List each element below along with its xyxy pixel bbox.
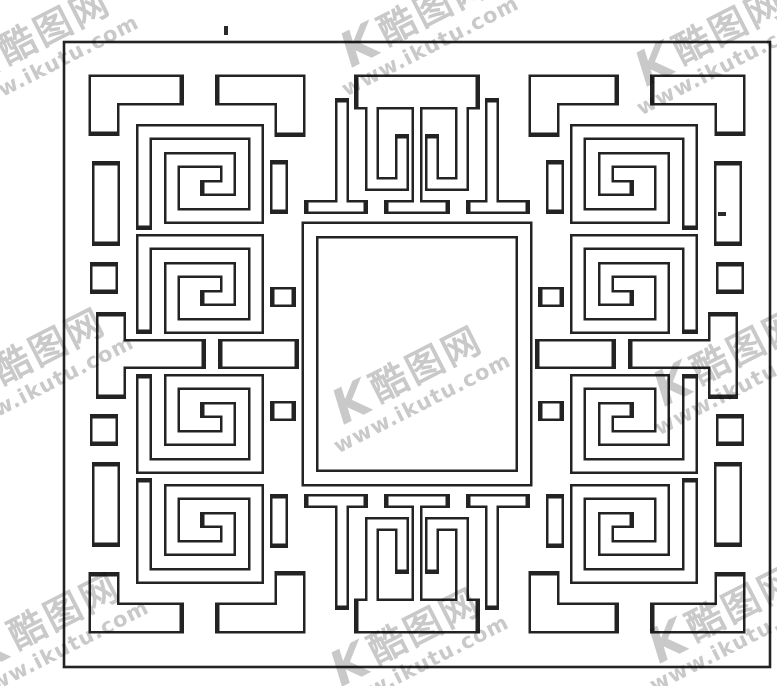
lattice-pattern-drawing: [0, 0, 777, 686]
scan-speck: [224, 26, 228, 35]
scan-speck: [718, 212, 726, 216]
scanned-pattern-image: K酷图网www.ikutu.comK酷图网www.ikutu.comK酷图网ww…: [0, 0, 777, 686]
